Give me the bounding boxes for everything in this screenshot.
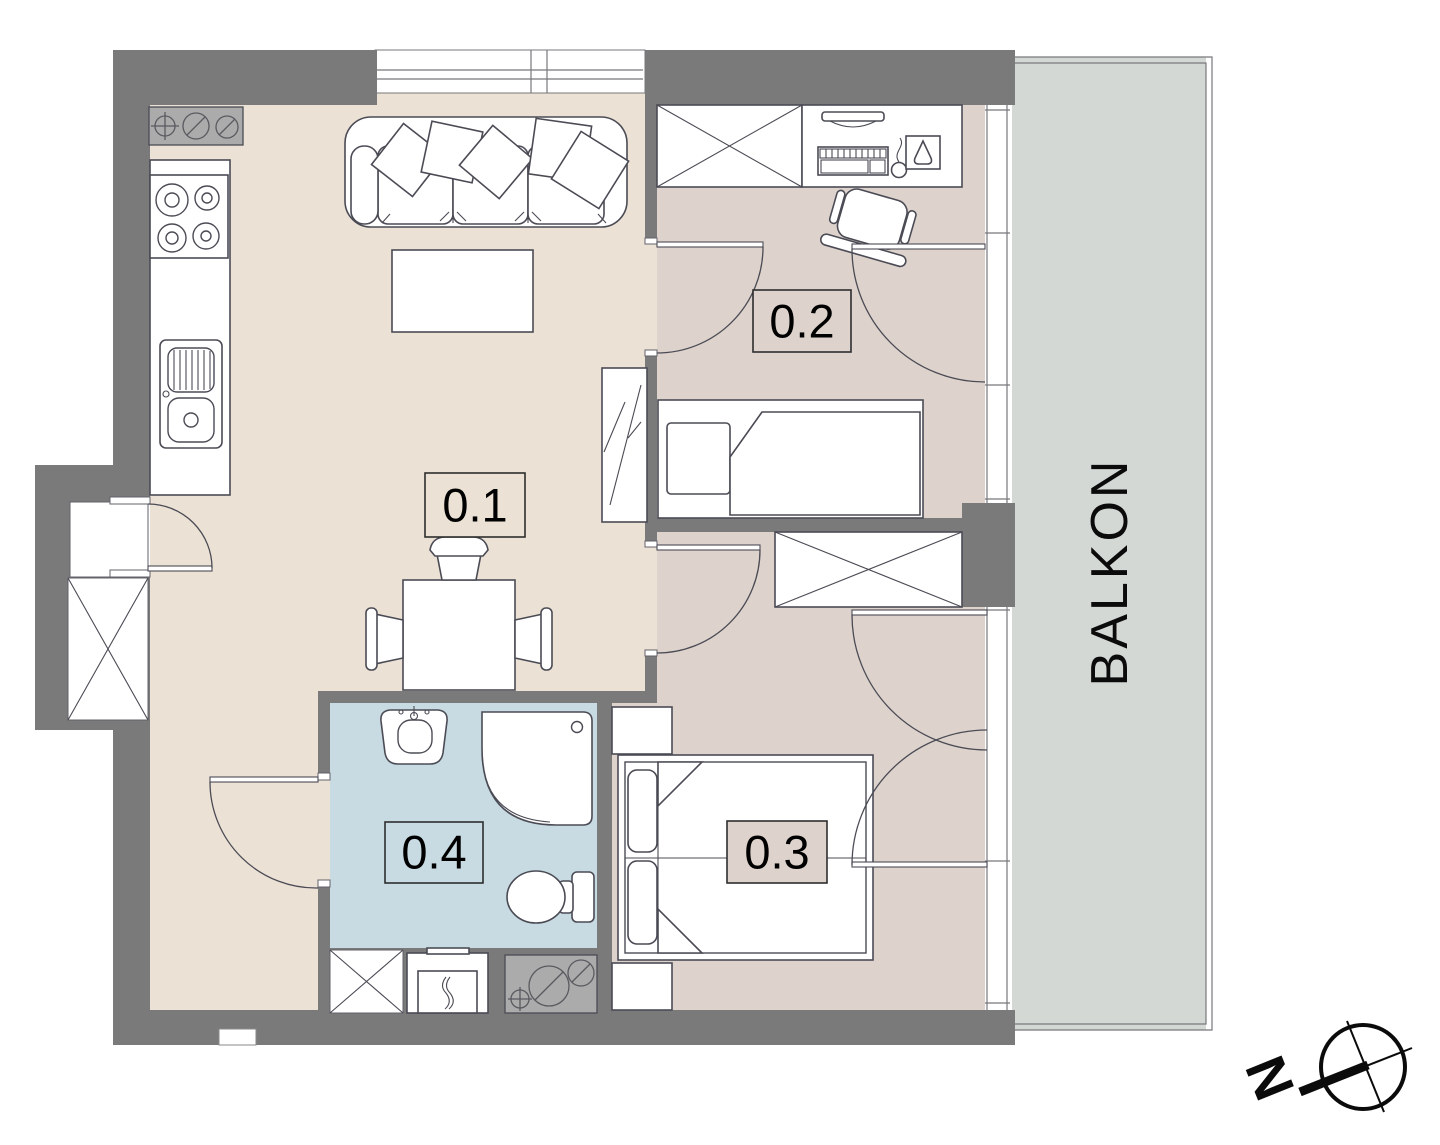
toilet-icon: [507, 871, 594, 923]
balcony-label: BALKON: [1081, 458, 1139, 687]
sofa-icon: [345, 117, 629, 227]
room-label-02-text: 0.2: [769, 295, 834, 348]
floor-plan-drawing: 0.1 0.2 0.3 0.4 BALKON N: [0, 0, 1440, 1145]
keyboard-icon: [818, 147, 888, 175]
bathroom-sink-icon: [381, 706, 447, 764]
entry-door-niche: [70, 502, 148, 577]
room-label-04: 0.4: [385, 822, 483, 883]
nightstand-icon-bottom: [612, 963, 672, 1010]
pillow-icon: [628, 770, 657, 852]
compass-rose: N: [1233, 1021, 1412, 1112]
bed-single-icon: [658, 400, 923, 518]
room-label-02: 0.2: [753, 290, 851, 352]
north-letter: N: [1233, 1047, 1307, 1108]
wall-vent-gap: [219, 1029, 256, 1045]
wardrobe-icon-03: [775, 532, 962, 607]
bathroom-shaft-icon: [330, 950, 403, 1013]
kitchen: [150, 160, 230, 495]
room-label-04-text: 0.4: [401, 826, 466, 879]
room-label-01: 0.1: [425, 473, 525, 537]
washing-machine-icon: [407, 948, 488, 1013]
desk-lamp-icon: [906, 136, 940, 169]
utility-meters-icon-bottom: [505, 955, 597, 1013]
pillow-icon: [667, 423, 730, 494]
installation-shaft-icon: [68, 578, 148, 720]
desk-icon: [802, 105, 962, 187]
mirror-icon: [602, 368, 647, 522]
floor-plan-page: 0.1 0.2 0.3 0.4 BALKON N: [0, 0, 1440, 1145]
room-label-01-text: 0.1: [442, 479, 507, 532]
living-room-window: [375, 50, 645, 93]
room-label-03-text: 0.3: [744, 826, 809, 879]
coffee-table-icon: [392, 250, 533, 332]
stove-icon: [150, 175, 228, 258]
kitchen-sink-icon: [160, 340, 222, 448]
wardrobe-icon-02: [657, 105, 802, 187]
sofa-pillows: [372, 118, 629, 208]
nightstand-icon-top: [612, 707, 672, 754]
pillow-icon: [628, 861, 657, 944]
utility-meters-icon-top: [149, 107, 243, 145]
dining-table-icon: [403, 580, 515, 690]
room-label-03: 0.3: [727, 821, 827, 883]
